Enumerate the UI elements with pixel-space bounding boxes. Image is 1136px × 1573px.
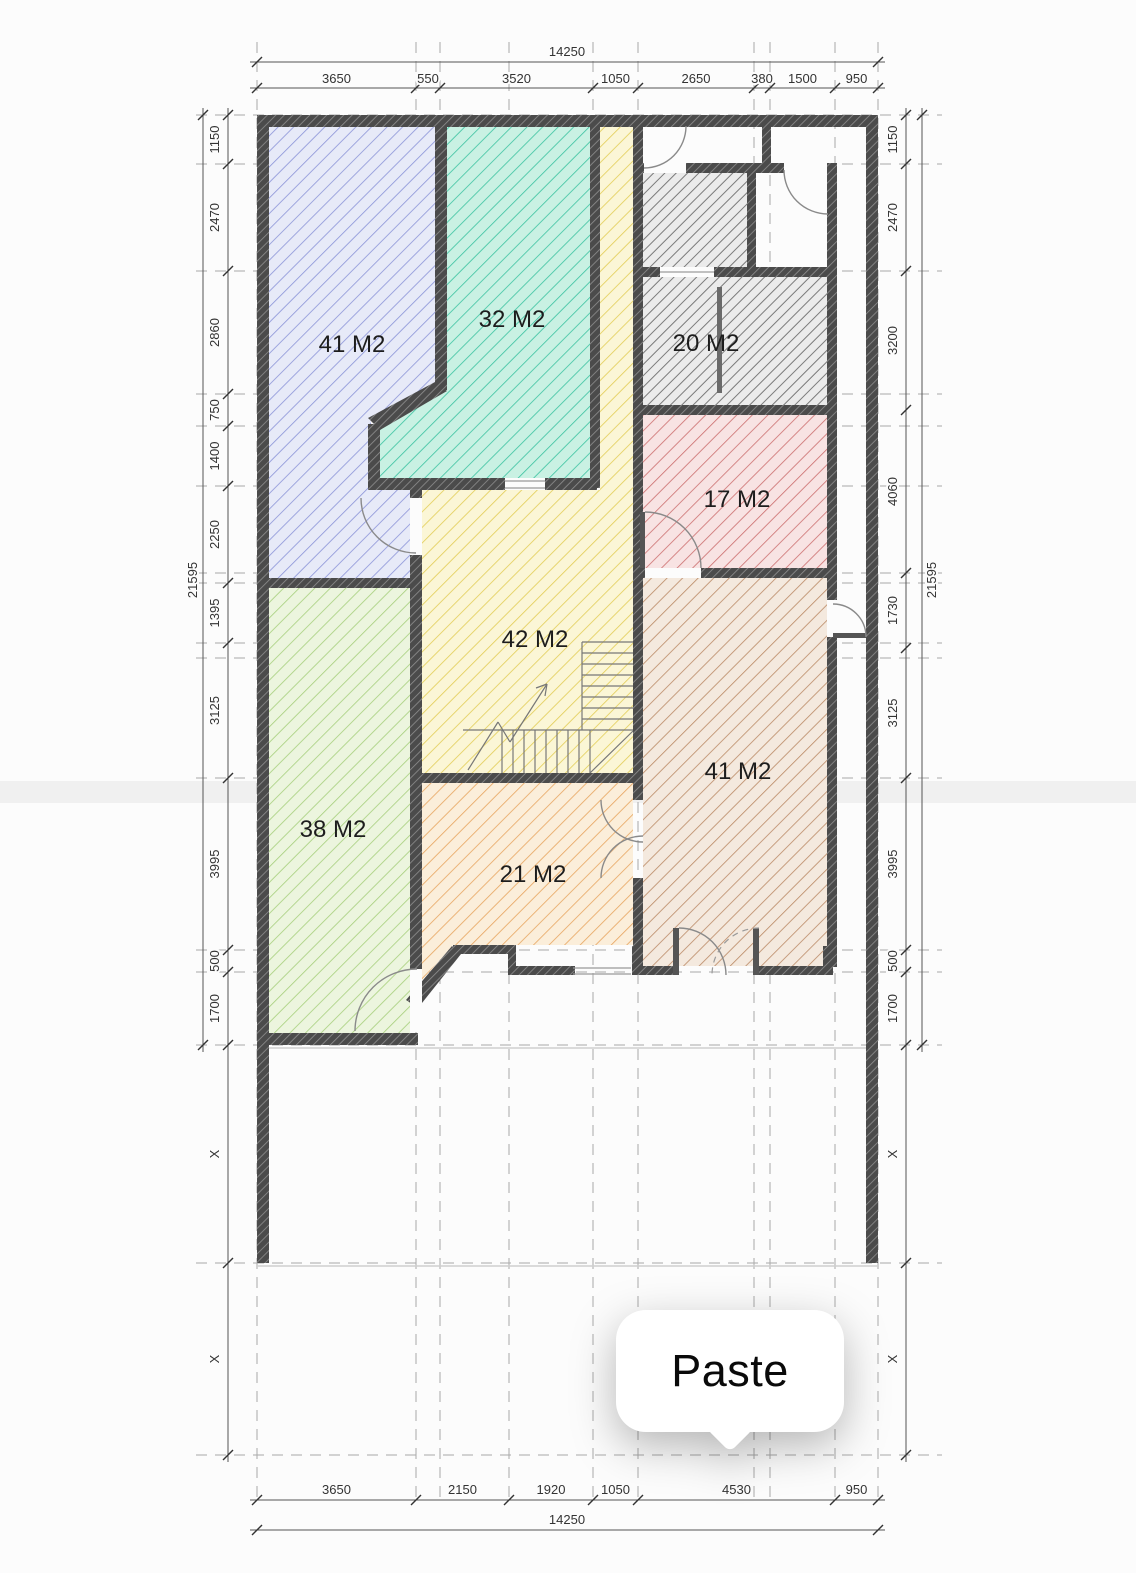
dim-label: 2250 (207, 520, 222, 549)
dim-total-right: 21595 (924, 562, 939, 598)
room-green-bottom-left (269, 588, 410, 1033)
dim-label: 750 (207, 399, 222, 421)
dim-label: 550 (417, 71, 439, 86)
room-label-teal: 32 M2 (479, 306, 546, 333)
dim-label: 3125 (885, 699, 900, 728)
dim-label: 1050 (601, 71, 630, 86)
paste-label: Paste (671, 1345, 789, 1397)
door-arc (784, 170, 828, 214)
room-label-orange: 21 M2 (500, 861, 567, 888)
door-arc (644, 126, 686, 168)
floor-plan-canvas: 3650550352010502650380150095036502150192… (0, 0, 1136, 1573)
dim-label: 1050 (601, 1482, 630, 1497)
dim-label: 2860 (207, 318, 222, 347)
room-label-red: 17 M2 (704, 486, 771, 513)
dim-label: 1920 (537, 1482, 566, 1497)
room-label-blue: 41 M2 (319, 331, 386, 358)
dim-total-bottom: 14250 (549, 1512, 585, 1527)
floor-plan-drawing: 3650550352010502650380150095036502150192… (0, 0, 1136, 1573)
door-arc (833, 604, 866, 637)
dim-label: 2470 (885, 203, 900, 232)
room-label-green: 38 M2 (300, 816, 367, 843)
paste-button[interactable]: Paste (616, 1310, 844, 1432)
dim-label: 1500 (788, 71, 817, 86)
dim-label: X (885, 1354, 900, 1363)
dim-label: 1700 (207, 994, 222, 1023)
dim-label: 1730 (885, 596, 900, 625)
dim-label: 2650 (682, 71, 711, 86)
dim-label: 3995 (207, 850, 222, 879)
dim-label: 3520 (502, 71, 531, 86)
dim-label: 3995 (885, 850, 900, 879)
dim-label: 950 (846, 1482, 868, 1497)
dim-total-top: 14250 (549, 44, 585, 59)
room-yellow-strip (600, 127, 633, 490)
dim-label: 3125 (207, 696, 222, 725)
dim-label: 1150 (207, 126, 222, 154)
dim-label: 1400 (207, 442, 222, 471)
dim-label: 4530 (722, 1482, 751, 1497)
room-label-gray: 20 M2 (673, 330, 740, 357)
dim-label: X (207, 1149, 222, 1158)
dim-label: X (207, 1354, 222, 1363)
dim-label: 3200 (885, 326, 900, 355)
dim-label: 1395 (207, 599, 222, 628)
dim-label: 4060 (885, 477, 900, 506)
room-gray-small (643, 173, 747, 267)
dim-label: 2150 (448, 1482, 477, 1497)
dim-label: X (885, 1149, 900, 1158)
dim-label: 500 (207, 950, 222, 972)
paste-callout-bubble[interactable]: Paste (616, 1310, 844, 1432)
dim-label: 3650 (322, 1482, 351, 1497)
dim-label: 500 (885, 950, 900, 972)
dim-label: 3650 (322, 71, 351, 86)
dim-label: 2470 (207, 203, 222, 232)
dim-label: 950 (846, 71, 868, 86)
dim-label: 1150 (885, 126, 900, 154)
dim-total-left: 21595 (185, 562, 200, 598)
dim-label: 1700 (885, 994, 900, 1023)
dim-label: 380 (751, 71, 773, 86)
room-label-yellow: 42 M2 (502, 626, 569, 653)
room-label-brown: 41 M2 (705, 758, 772, 785)
